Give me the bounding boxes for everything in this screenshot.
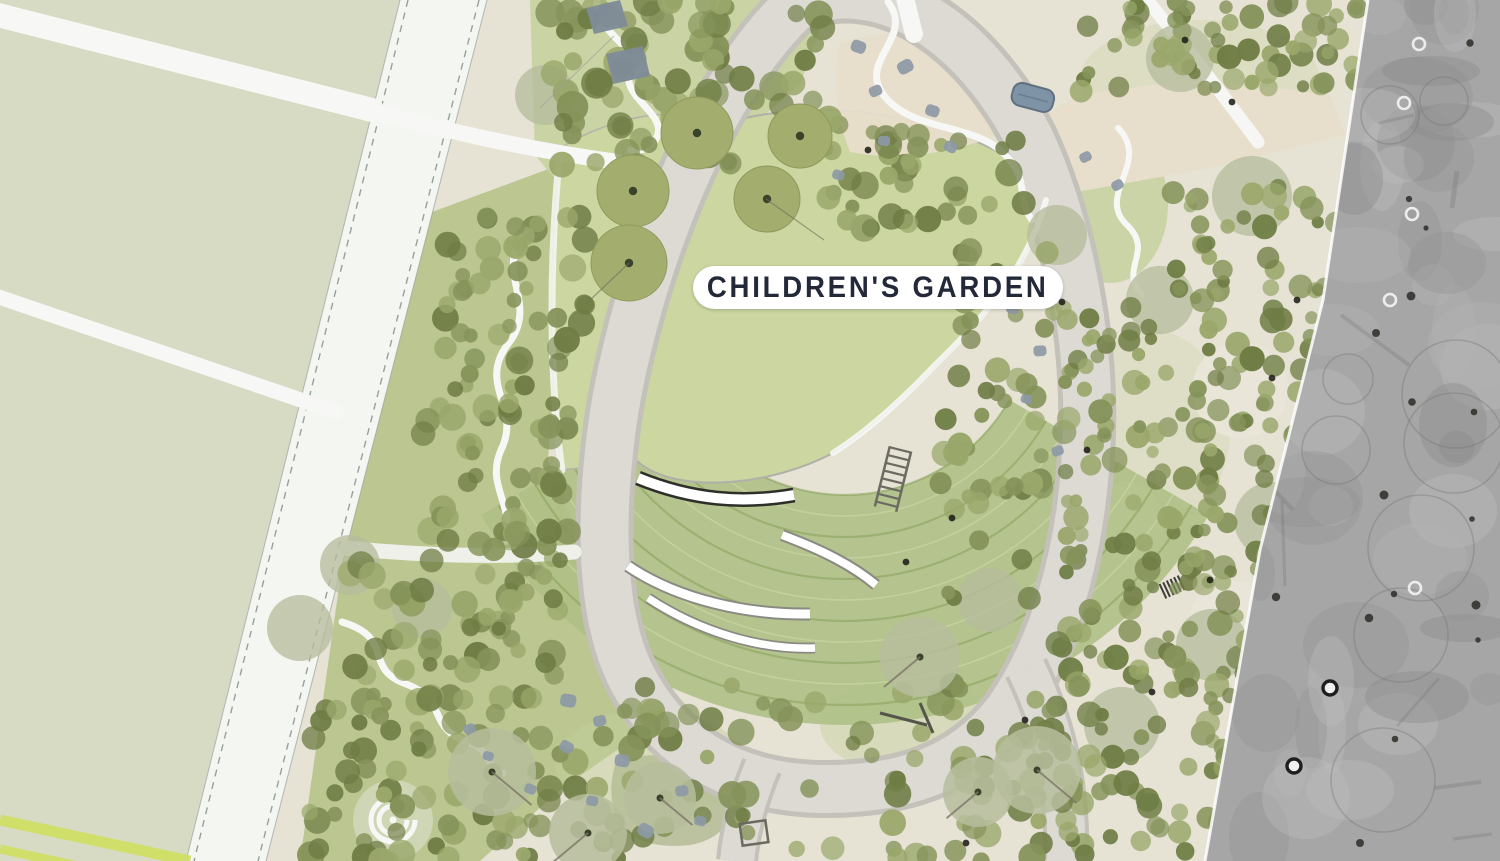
site-plan: CHILDREN'S GARDEN (0, 0, 1500, 861)
site-plan-canvas (0, 0, 1500, 861)
garden-label: CHILDREN'S GARDEN (693, 266, 1063, 309)
garden-label-text: CHILDREN'S GARDEN (707, 271, 1049, 305)
